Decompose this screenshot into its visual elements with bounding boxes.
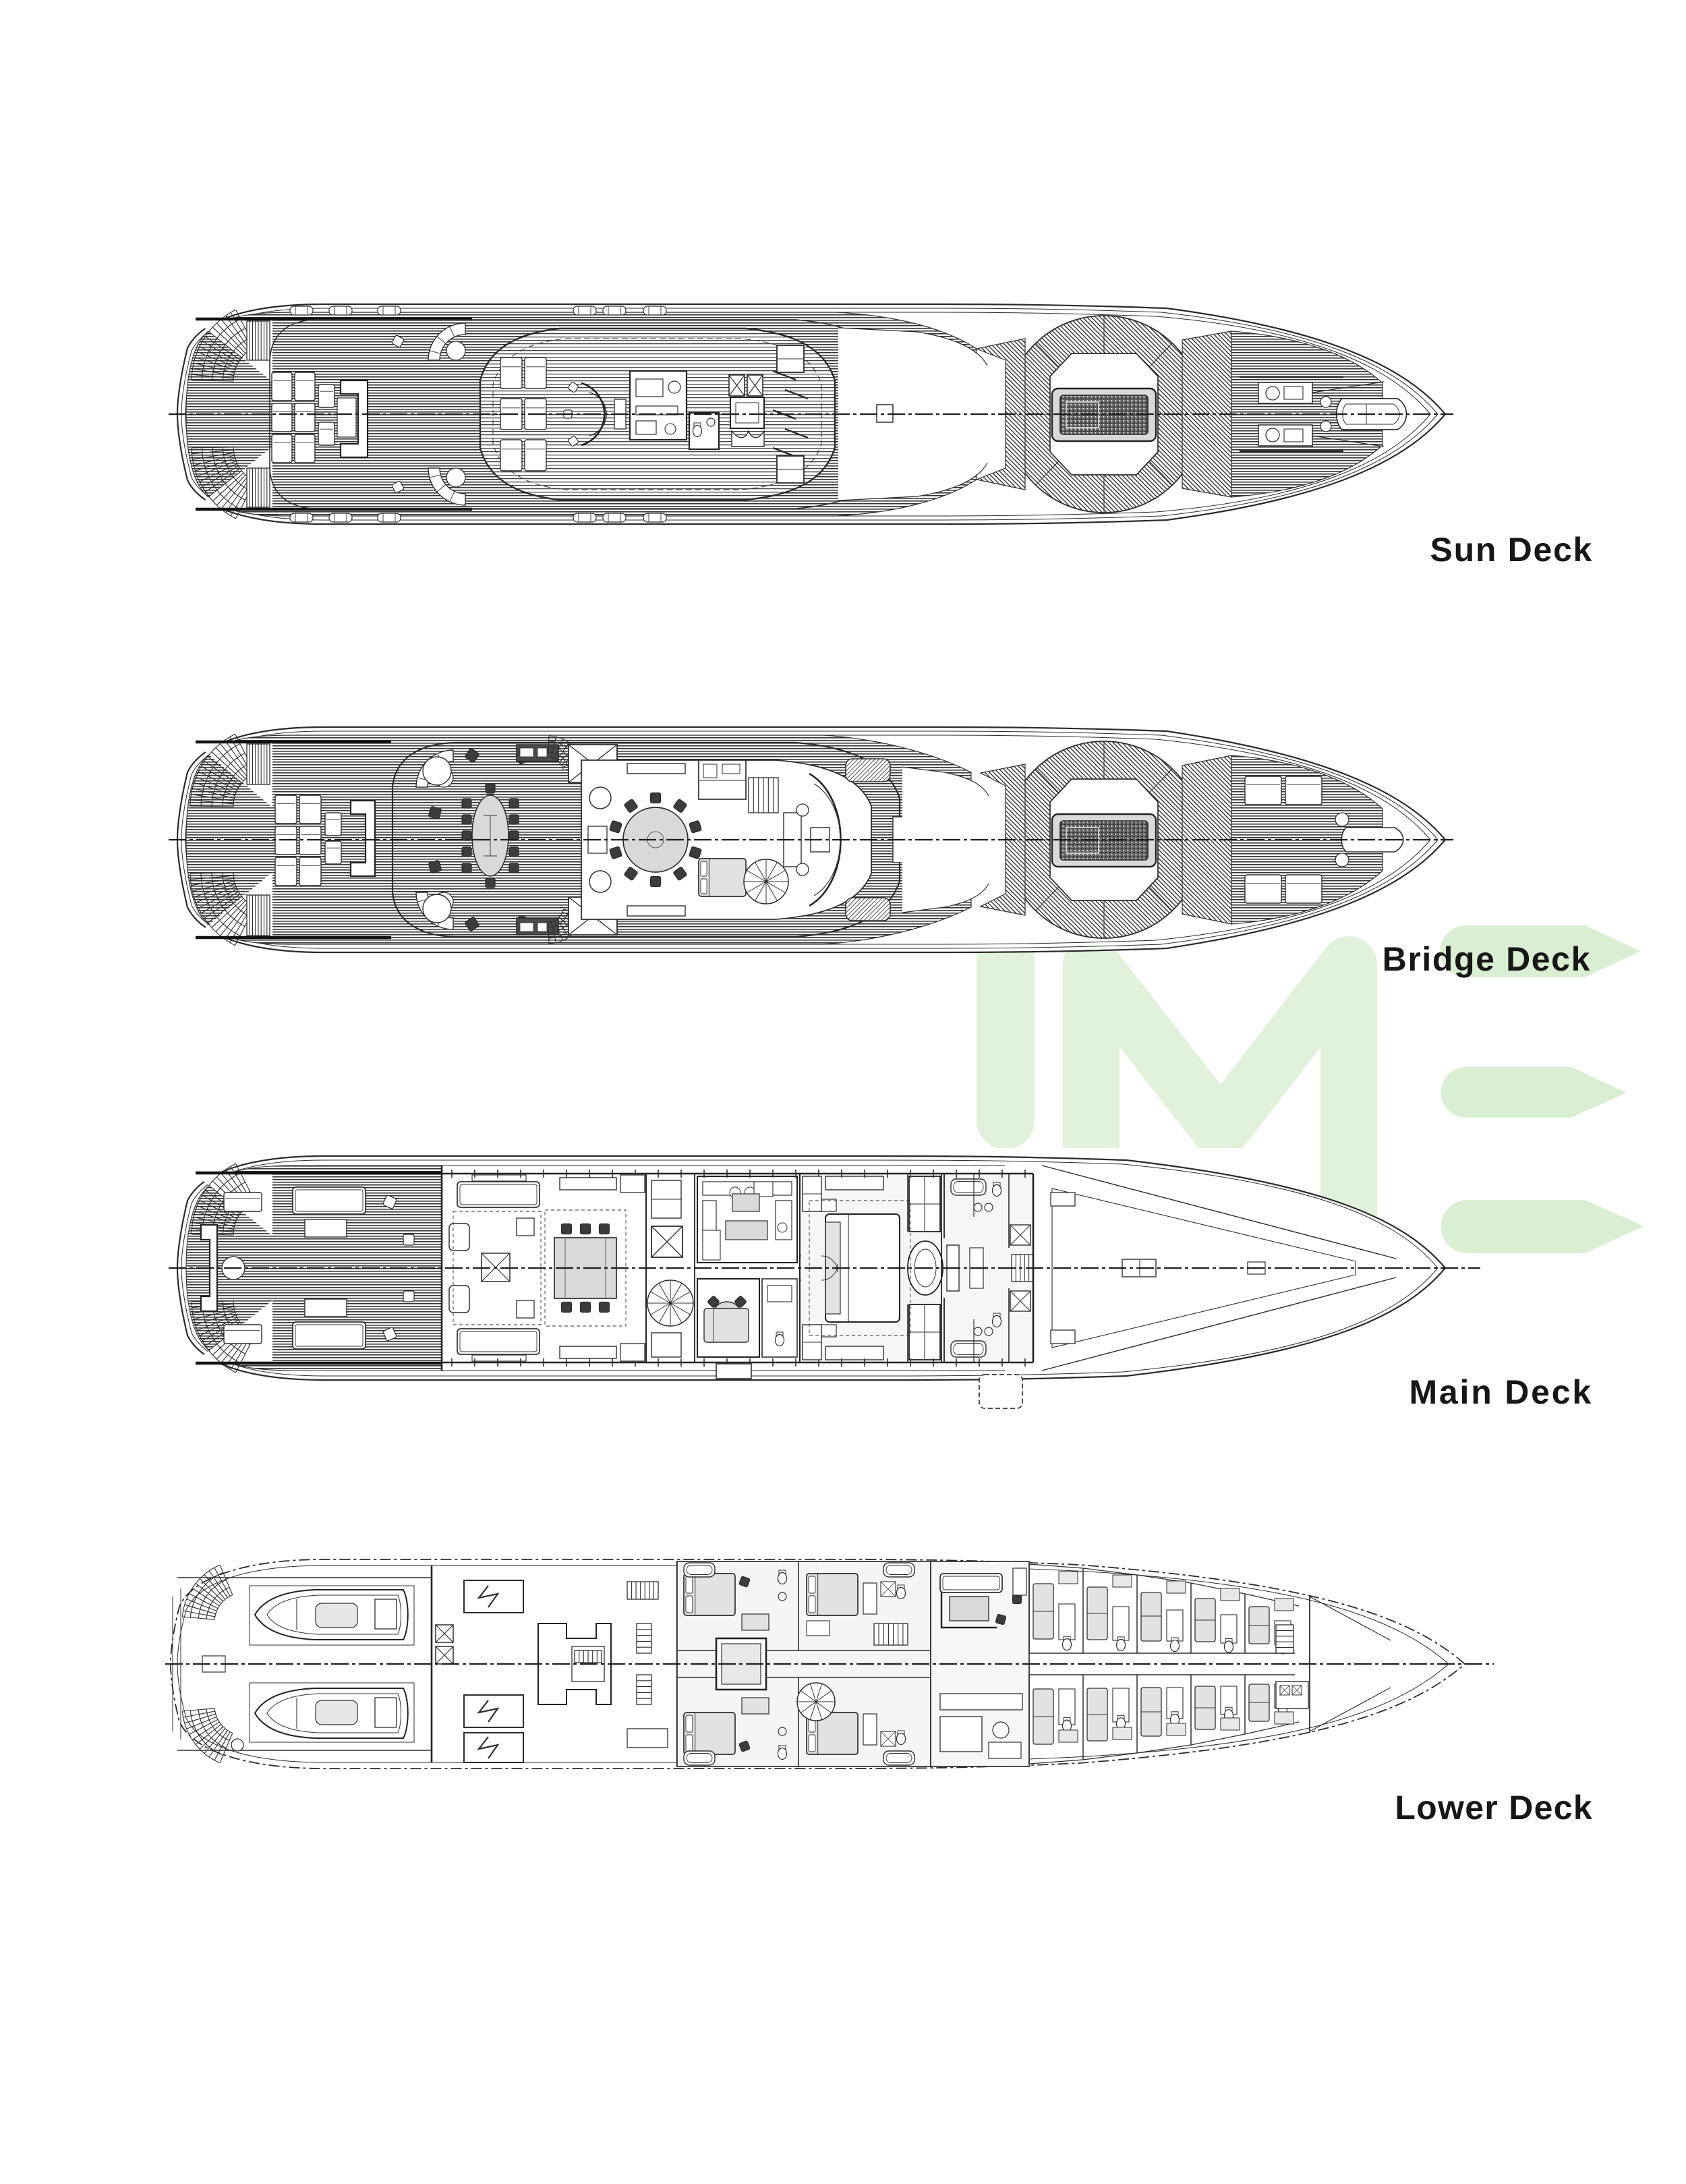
svg-text:Main Deck: Main Deck <box>1409 1373 1593 1411</box>
svg-text:Sun Deck: Sun Deck <box>1430 531 1593 569</box>
svg-text:Bridge Deck: Bridge Deck <box>1383 940 1591 978</box>
svg-text:Lower Deck: Lower Deck <box>1395 1789 1593 1827</box>
